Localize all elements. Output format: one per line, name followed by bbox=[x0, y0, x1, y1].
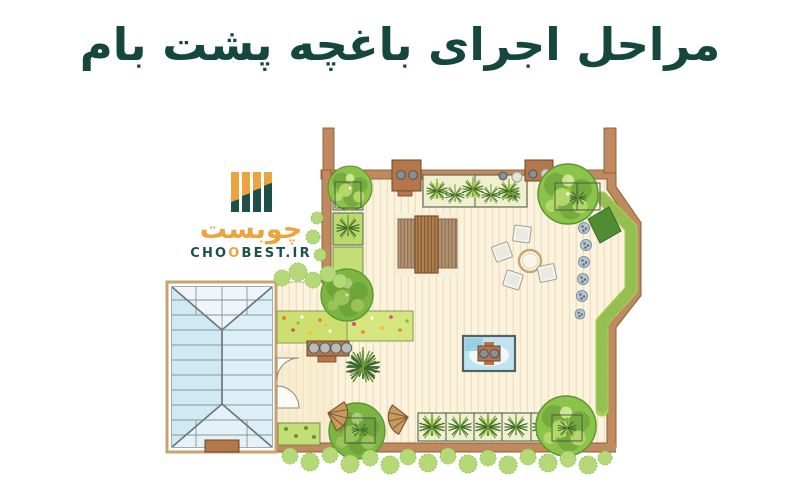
wood-lounger-set bbox=[395, 213, 460, 277]
chimney-stub-right bbox=[604, 128, 616, 173]
top-grass-planter bbox=[423, 175, 527, 207]
skylight-vent bbox=[205, 440, 239, 452]
page-title: مراحل اجرای باغچه پشت بام bbox=[0, 18, 800, 71]
spa-fire-table bbox=[463, 336, 515, 371]
bbq-counter-top-left bbox=[392, 160, 421, 196]
skylight-glass-roof bbox=[167, 282, 276, 452]
rooftop-garden-floor-plan bbox=[150, 118, 650, 478]
small-corner-planter bbox=[278, 423, 320, 445]
chimney-stub-left bbox=[323, 128, 334, 173]
